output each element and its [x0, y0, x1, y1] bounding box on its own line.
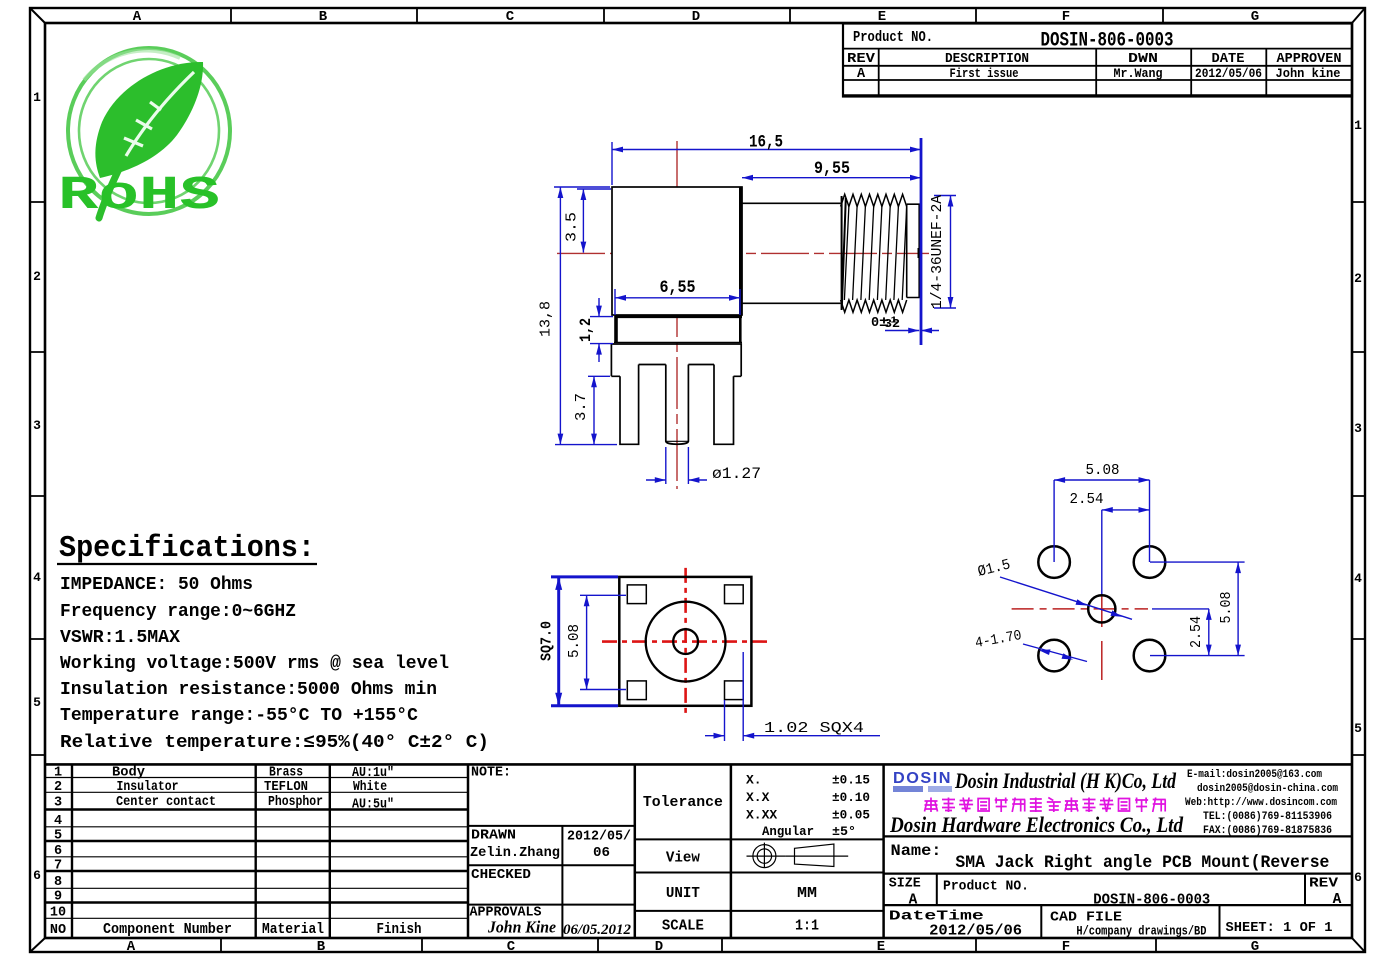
- svg-text:4: 4: [33, 570, 41, 585]
- svg-text:dosin2005@dosin-china.com: dosin2005@dosin-china.com: [1197, 783, 1338, 795]
- svg-text:5: 5: [33, 695, 41, 710]
- svg-text:NO: NO: [50, 923, 66, 938]
- svg-text:Insulation resistance:5000 Ohm: Insulation resistance:5000 Ohms min: [60, 679, 437, 700]
- svg-text:6: 6: [54, 844, 62, 859]
- svg-text:B: B: [319, 9, 328, 25]
- svg-text:2012/05/06: 2012/05/06: [1195, 66, 1262, 81]
- svg-text:Tolerance: Tolerance: [643, 794, 723, 811]
- svg-text:Angular: Angular: [762, 824, 814, 839]
- svg-text:REV: REV: [1309, 877, 1339, 892]
- svg-text:G: G: [1251, 939, 1259, 955]
- svg-text:A: A: [1333, 892, 1342, 908]
- svg-text:TEFLON: TEFLON: [264, 780, 308, 795]
- svg-text:Body: Body: [112, 765, 145, 780]
- svg-text:2012/05/06: 2012/05/06: [929, 924, 1022, 940]
- svg-text:1: 1: [54, 766, 62, 781]
- svg-text:DATE: DATE: [1212, 52, 1245, 67]
- svg-text:B: B: [317, 939, 326, 955]
- svg-text:CHECKED: CHECKED: [471, 868, 531, 883]
- svg-text:1/4-36UNEF-2A: 1/4-36UNEF-2A: [930, 195, 946, 309]
- svg-text:Material: Material: [262, 922, 324, 938]
- svg-text:SMA Jack Right angle PCB Mount: SMA Jack Right angle PCB Mount(Reverse: [955, 853, 1329, 873]
- svg-text:16,5: 16,5: [749, 133, 783, 153]
- svg-text:X.: X.: [746, 773, 762, 788]
- svg-text:8: 8: [54, 875, 62, 890]
- svg-text:Insulator: Insulator: [117, 780, 179, 795]
- svg-text:A: A: [909, 893, 918, 909]
- svg-text:Mr.Wang: Mr.Wang: [1114, 66, 1163, 81]
- svg-text:3: 3: [54, 796, 62, 811]
- svg-text:E: E: [877, 939, 885, 955]
- svg-text:Dosin Industrial (H K)Co, Ltd: Dosin Industrial (H K)Co, Ltd: [954, 768, 1177, 793]
- svg-text:Zelin.Zhang: Zelin.Zhang: [470, 846, 560, 861]
- svg-text:IMPEDANCE: 50 Ohms: IMPEDANCE: 50 Ohms: [60, 574, 253, 595]
- svg-text:Product NO.: Product NO.: [853, 30, 933, 46]
- svg-text:DESCRIPTION: DESCRIPTION: [945, 52, 1029, 67]
- svg-text:DOSIN-806-0003: DOSIN-806-0003: [1093, 893, 1210, 909]
- svg-text:Frequency range:0~6GHZ: Frequency range:0~6GHZ: [60, 601, 296, 622]
- svg-text:5.08: 5.08: [567, 624, 583, 658]
- svg-text:3.5: 3.5: [564, 212, 581, 242]
- svg-text:32: 32: [884, 317, 900, 331]
- svg-text:John kine: John kine: [1276, 66, 1341, 81]
- svg-text:SIZE: SIZE: [889, 877, 921, 892]
- svg-text:5.08: 5.08: [1219, 592, 1235, 624]
- svg-text:Working voltage:500V rms @ sea: Working voltage:500V rms @ sea level: [60, 653, 449, 674]
- svg-text:A: A: [133, 9, 142, 25]
- svg-text:1.02 SQX4: 1.02 SQX4: [764, 720, 864, 737]
- svg-text:9: 9: [54, 890, 62, 905]
- svg-text:UNIT: UNIT: [666, 885, 700, 902]
- svg-text:2.54: 2.54: [1189, 616, 1205, 648]
- svg-text:Brass: Brass: [269, 765, 303, 780]
- svg-text:±5°: ±5°: [832, 824, 856, 839]
- svg-text:2012/05/: 2012/05/: [567, 830, 631, 845]
- svg-text:AU:1u″: AU:1u″: [352, 766, 394, 781]
- svg-text:5.08: 5.08: [1086, 463, 1120, 479]
- svg-text:DRAWN: DRAWN: [471, 829, 516, 844]
- svg-text:6: 6: [1354, 870, 1362, 885]
- svg-text:NOTE:: NOTE:: [471, 766, 511, 781]
- svg-text:MM: MM: [797, 885, 817, 902]
- svg-text:4: 4: [1354, 571, 1362, 586]
- svg-text:D: D: [692, 9, 700, 25]
- svg-text:10: 10: [50, 906, 66, 921]
- svg-text:ø1.27: ø1.27: [712, 465, 761, 483]
- svg-text:4: 4: [54, 814, 62, 829]
- svg-text:5: 5: [54, 829, 62, 844]
- svg-text:06/05.2012: 06/05.2012: [563, 922, 631, 938]
- svg-text:±0.15: ±0.15: [832, 773, 870, 788]
- svg-text:Web:http://www.dosincom.com: Web:http://www.dosincom.com: [1185, 797, 1337, 809]
- svg-text:SHEET: 1 OF 1: SHEET: 1 OF 1: [1226, 920, 1333, 936]
- svg-text:3: 3: [1354, 421, 1362, 436]
- svg-text:H/company drawings/BD: H/company drawings/BD: [1076, 924, 1206, 939]
- svg-text:First issue: First issue: [950, 66, 1019, 81]
- svg-text:DWN: DWN: [1128, 52, 1158, 67]
- svg-text:6: 6: [33, 868, 41, 883]
- svg-text:Center contact: Center contact: [116, 795, 216, 810]
- svg-text:0: 0: [871, 316, 879, 331]
- svg-text:C: C: [506, 9, 515, 25]
- svg-text:DOSIN: DOSIN: [893, 770, 952, 787]
- svg-text:5: 5: [1354, 721, 1362, 736]
- svg-text:1: 1: [33, 90, 41, 105]
- svg-text:F: F: [1062, 939, 1070, 955]
- svg-text:John Kine: John Kine: [487, 918, 556, 937]
- svg-text:1: 1: [1354, 118, 1362, 133]
- svg-text:DateTime: DateTime: [889, 909, 984, 925]
- svg-text:Product NO.: Product NO.: [943, 880, 1029, 895]
- svg-text:X.XX: X.XX: [746, 808, 777, 823]
- svg-text:Component Number: Component Number: [103, 922, 232, 938]
- svg-text:White: White: [353, 780, 387, 795]
- svg-text:Specifications:: Specifications:: [59, 531, 315, 566]
- svg-text:Relative temperature:≤95%(40°: Relative temperature:≤95%(40° C±2° C): [60, 732, 489, 753]
- svg-text:2: 2: [33, 269, 41, 284]
- svg-text:SCALE: SCALE: [662, 918, 704, 935]
- svg-text:DOSIN-806-0003: DOSIN-806-0003: [1041, 30, 1174, 53]
- svg-text:1:1: 1:1: [795, 918, 819, 935]
- svg-text:Finish: Finish: [377, 922, 422, 938]
- svg-text:A: A: [857, 67, 866, 82]
- svg-text:AU:5u″: AU:5u″: [352, 798, 394, 813]
- svg-text:9,55: 9,55: [814, 159, 850, 179]
- svg-text:1,2: 1,2: [577, 318, 595, 342]
- svg-text:13,8: 13,8: [538, 301, 555, 337]
- svg-text:FAX:(0086)769-81875836: FAX:(0086)769-81875836: [1203, 825, 1332, 837]
- svg-text:2.54: 2.54: [1070, 492, 1104, 508]
- svg-text:TEL:(0086)769-81153906: TEL:(0086)769-81153906: [1203, 811, 1332, 823]
- svg-text:3: 3: [33, 418, 41, 433]
- svg-text:Dosin Hardware Electronics Co.: Dosin Hardware Electronics Co., Ltd: [889, 812, 1184, 837]
- svg-text:A: A: [127, 939, 136, 955]
- svg-text:3.7: 3.7: [573, 393, 590, 421]
- svg-text:6,55: 6,55: [660, 278, 696, 298]
- svg-text:06: 06: [593, 846, 610, 861]
- svg-text:VSWR:1.5MAX: VSWR:1.5MAX: [60, 627, 181, 648]
- svg-text:Temperature range:-55°C TO +15: Temperature range:-55°C TO +155°C: [60, 705, 418, 726]
- svg-text:RoHS: RoHS: [58, 170, 220, 223]
- svg-text:±0.10: ±0.10: [832, 790, 870, 805]
- svg-text:X.X: X.X: [746, 790, 770, 805]
- svg-text:E-mail:dosin2005@163.com: E-mail:dosin2005@163.com: [1187, 769, 1322, 781]
- svg-text:Phosphor: Phosphor: [268, 795, 323, 810]
- svg-text:SQ7.0: SQ7.0: [539, 621, 556, 661]
- svg-text:D: D: [655, 939, 663, 955]
- svg-text:C: C: [507, 939, 516, 955]
- svg-text:7: 7: [54, 859, 62, 874]
- svg-text:Name:: Name:: [891, 842, 942, 860]
- svg-text:2: 2: [54, 780, 62, 795]
- svg-text:±0.05: ±0.05: [832, 808, 870, 823]
- svg-text:View: View: [666, 850, 700, 867]
- svg-text:2: 2: [1354, 271, 1362, 286]
- svg-text:APPROVEN: APPROVEN: [1277, 52, 1342, 67]
- svg-text:REV: REV: [847, 52, 876, 67]
